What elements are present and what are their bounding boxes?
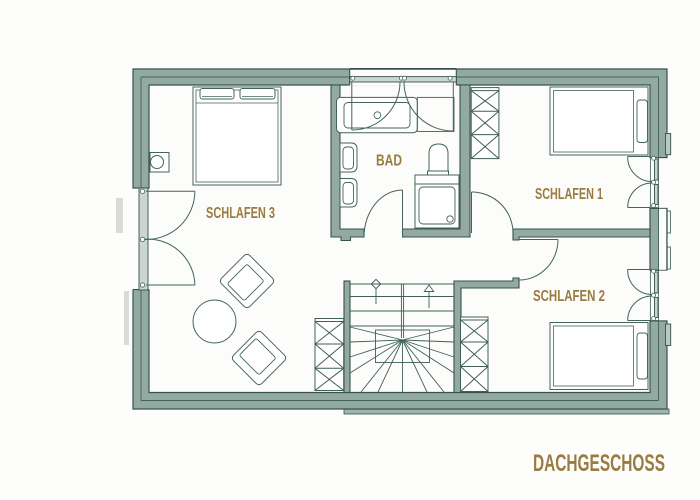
svg-text:SCHLAFEN 2: SCHLAFEN 2 — [533, 288, 605, 305]
svg-text:DACHGESCHOSS: DACHGESCHOSS — [533, 450, 665, 477]
svg-text:BAD: BAD — [376, 152, 402, 169]
svg-text:SCHLAFEN 3: SCHLAFEN 3 — [206, 205, 275, 222]
svg-text:SCHLAFEN 1: SCHLAFEN 1 — [535, 186, 603, 203]
